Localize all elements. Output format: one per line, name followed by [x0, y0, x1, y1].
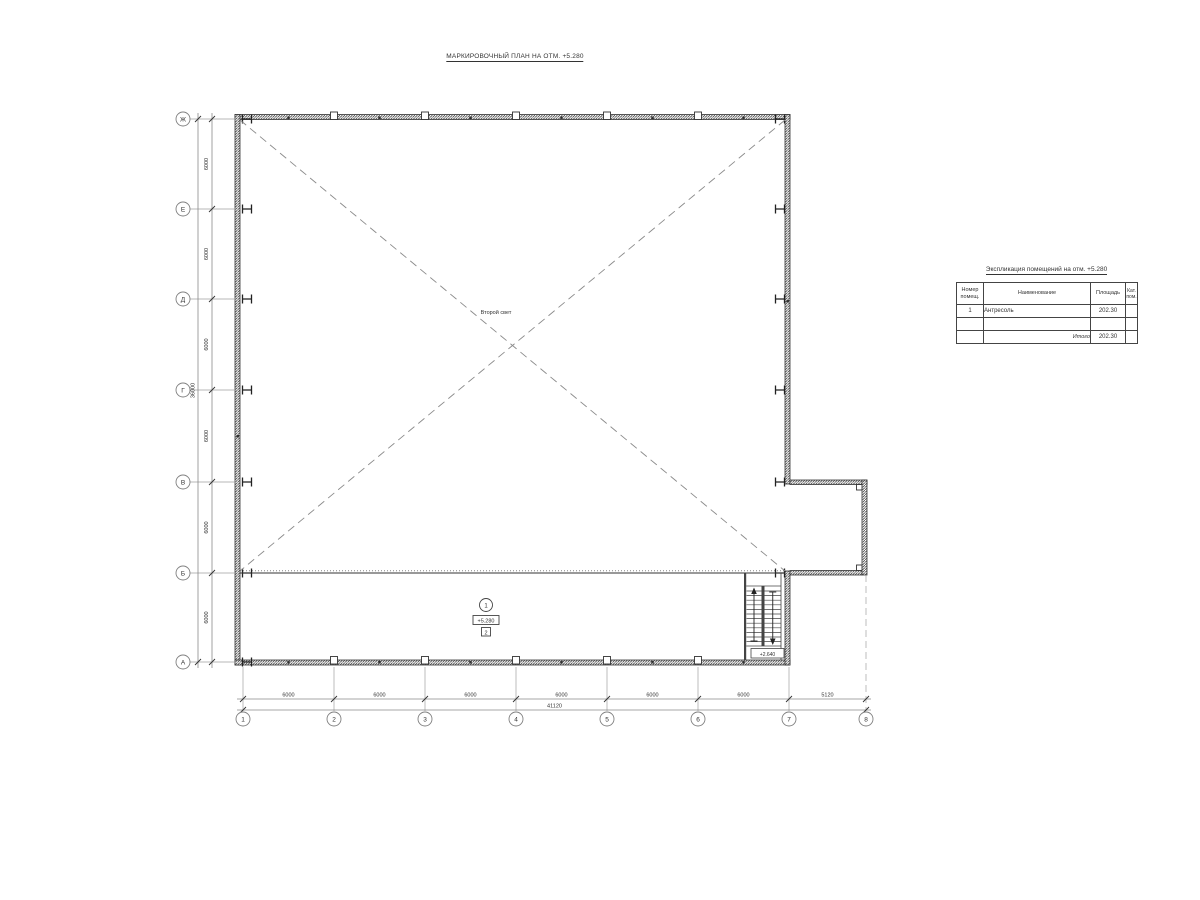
svg-text:Ж: Ж [180, 116, 186, 123]
dim-label: 6000 [555, 693, 567, 699]
room-floor-type: 2 [484, 630, 487, 636]
table-row: 1 Антресоль 202.30 [957, 305, 1138, 318]
drawing-canvas: Второй свет 1 +5.280 2 +2.6 [0, 0, 1200, 900]
building-walls [235, 115, 867, 666]
void-label: Второй свет [481, 309, 512, 316]
svg-text:Б: Б [181, 570, 185, 577]
dim-label: 6000 [373, 693, 385, 699]
axis-row-marker: Е [176, 202, 190, 216]
dim-label: 6000 [646, 693, 658, 699]
axis-leader-lines [190, 119, 866, 711]
stair-elevation: +2.640 [760, 652, 776, 658]
dim-label: 6000 [737, 693, 749, 699]
axis-row-marker: Д [176, 292, 190, 306]
svg-text:Г: Г [181, 387, 185, 394]
stair-left-wall [744, 573, 746, 660]
svg-text:6: 6 [696, 716, 700, 723]
room-schedule-title-text: Экспликация помещений на отм. +5.280 [986, 266, 1107, 275]
col-header-category: Кат.пом. [1126, 283, 1138, 305]
wall-annex-right [862, 480, 867, 575]
void-opening: Второй свет [240, 120, 785, 571]
wall-stud-dots [237, 117, 790, 664]
table-total-row: Итого 202.30 [957, 331, 1138, 344]
stair-divider-wall [762, 586, 765, 646]
staircase: +2.640 [744, 573, 784, 660]
svg-text:4: 4 [514, 716, 518, 723]
svg-text:7: 7 [787, 716, 791, 723]
dim-label: 6000 [204, 521, 210, 533]
cell-room-name: Антресоль [984, 305, 1091, 318]
svg-text:В: В [181, 479, 185, 486]
mezzanine-edge [240, 571, 785, 573]
col-header-name: Наименование [984, 283, 1091, 305]
room-schedule: Экспликация помещений на отм. +5.280 Ном… [956, 266, 1137, 344]
svg-text:2: 2 [332, 716, 336, 723]
svg-text:А: А [181, 659, 186, 666]
dim-label: 6000 [204, 158, 210, 170]
wall-annex-top [790, 480, 867, 485]
cell-total-label: Итого [984, 331, 1091, 344]
axis-col-bubbles: 1 2 3 4 5 6 7 8 [236, 712, 873, 726]
drawing-title: МАРКИРОВОЧНЫЙ ПЛАН НА ОТМ. +5.280 [446, 53, 583, 60]
annex-corner-columns [857, 485, 863, 571]
axis-col-marker: 6 [691, 712, 705, 726]
ibeam-columns-left [243, 115, 252, 667]
dimensions-left: 6000 6000 6000 6000 6000 6000 36000 [191, 113, 216, 668]
room-elevation: +5.280 [478, 618, 495, 624]
dim-label: 6000 [204, 248, 210, 260]
axis-col-marker: 8 [859, 712, 873, 726]
dimensions-bottom: 6000 6000 6000 6000 6000 6000 5120 41120 [237, 693, 871, 714]
svg-text:8: 8 [864, 716, 868, 723]
axis-row-marker: Г [176, 383, 190, 397]
dim-label: 6000 [282, 693, 294, 699]
col-header-number: Номерпомещ. [957, 283, 984, 305]
room-schedule-title: Экспликация помещений на отм. +5.280 [956, 266, 1137, 273]
cell-total-area: 202.30 [1091, 331, 1126, 344]
axis-col-marker: 5 [600, 712, 614, 726]
svg-text:3: 3 [423, 716, 427, 723]
table-header-row: Номерпомещ. Наименование Площадь Кат.пом… [957, 283, 1138, 305]
axis-row-marker: В [176, 475, 190, 489]
room-schedule-table: Номерпомещ. Наименование Площадь Кат.пом… [956, 282, 1138, 344]
svg-text:5: 5 [605, 716, 609, 723]
dim-label: 6000 [204, 430, 210, 442]
wall-right-lower [785, 571, 790, 665]
dim-label: 6000 [204, 611, 210, 623]
svg-text:Д: Д [181, 296, 186, 303]
drawing-title-text: МАРКИРОВОЧНЫЙ ПЛАН НА ОТМ. +5.280 [446, 53, 583, 62]
floor-plan-svg: Второй свет 1 +5.280 2 +2.6 [0, 0, 1200, 900]
axis-col-marker: 7 [782, 712, 796, 726]
cell-room-area: 202.30 [1091, 305, 1126, 318]
dim-label: 6000 [464, 693, 476, 699]
axis-col-marker: 4 [509, 712, 523, 726]
wall-right-upper [785, 115, 790, 485]
svg-text:1: 1 [241, 716, 245, 723]
axis-col-marker: 2 [327, 712, 341, 726]
table-row-empty [957, 318, 1138, 331]
dim-total-label: 36000 [191, 383, 197, 398]
dim-total-label: 41120 [547, 704, 562, 710]
axis-row-marker: Ж [176, 112, 190, 126]
room-mark: 1 +5.280 2 [473, 599, 499, 637]
axis-col-marker: 3 [418, 712, 432, 726]
ibeam-columns-right [776, 115, 785, 578]
axis-row-marker: Б [176, 566, 190, 580]
axis-row-marker: А [176, 655, 190, 669]
cell-room-category [1126, 305, 1138, 318]
axis-row-bubbles: Ж Е Д Г В Б А [176, 112, 190, 669]
col-header-area: Площадь [1091, 283, 1126, 305]
dim-label: 6000 [204, 338, 210, 350]
cell-room-number: 1 [957, 305, 984, 318]
axis-col-marker: 1 [236, 712, 250, 726]
wall-annex-bottom [790, 571, 862, 576]
svg-text:Е: Е [181, 206, 186, 213]
dim-label: 5120 [821, 693, 833, 699]
